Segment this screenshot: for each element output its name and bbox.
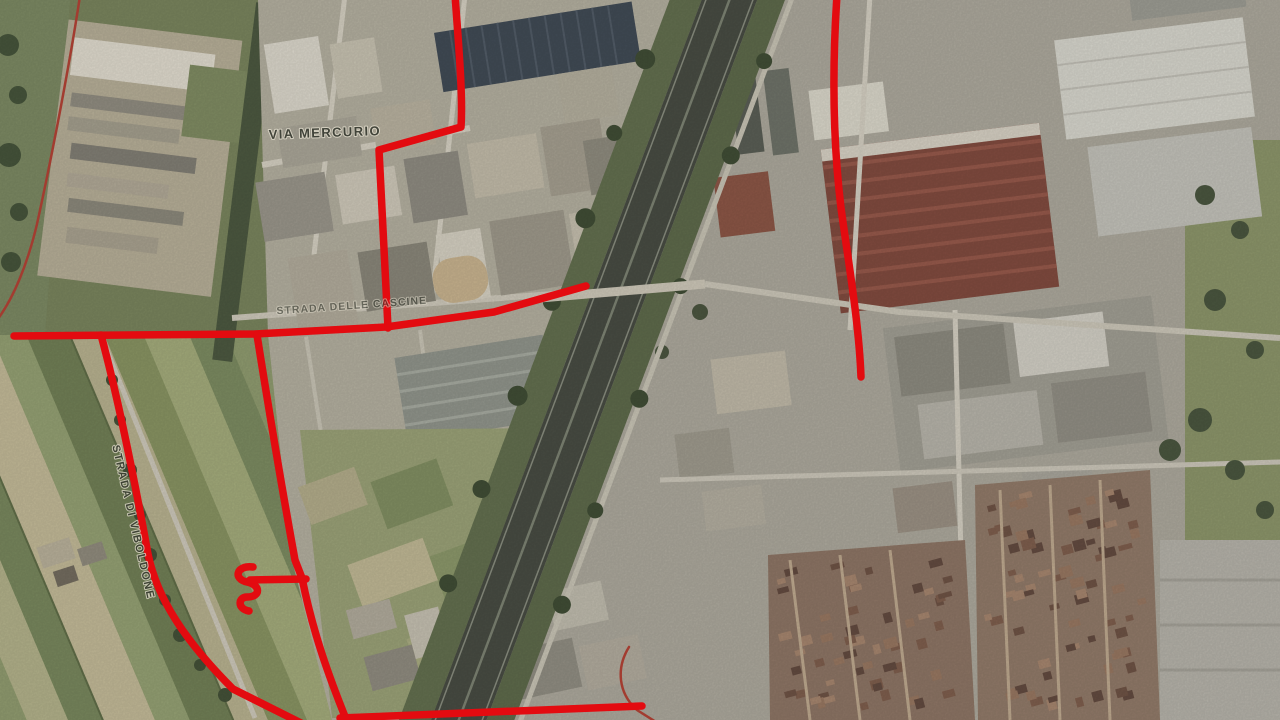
map-viewport: VIA MERCURIOSTRADA DELLE CASCINESTRADA D…	[0, 0, 1280, 720]
satellite-image: VIA MERCURIOSTRADA DELLE CASCINESTRADA D…	[0, 0, 1280, 720]
aerial-base	[0, 0, 1280, 720]
route-line	[250, 579, 306, 580]
